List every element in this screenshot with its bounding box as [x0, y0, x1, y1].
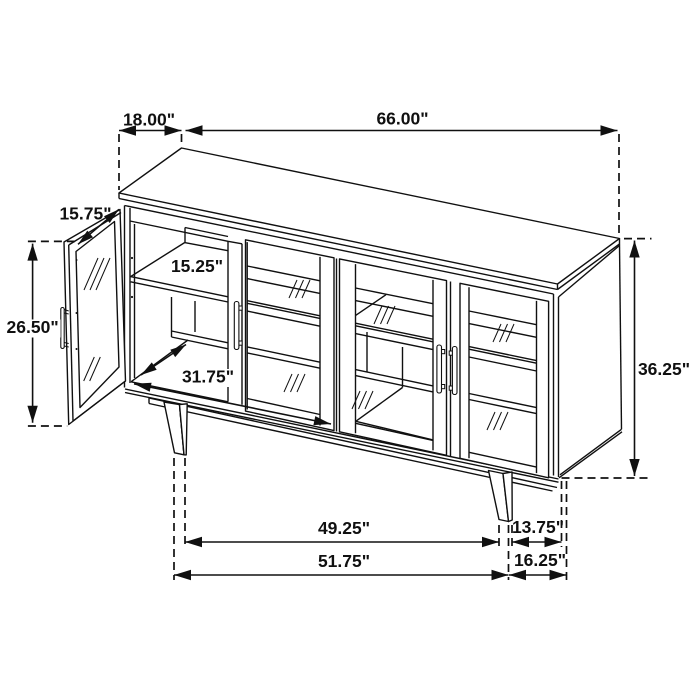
svg-text:15.25": 15.25": [171, 256, 223, 276]
svg-text:31.75": 31.75": [182, 367, 234, 387]
svg-text:16.25": 16.25": [514, 550, 566, 570]
svg-text:26.50": 26.50": [7, 317, 59, 337]
svg-text:15.75": 15.75": [59, 204, 111, 224]
svg-text:51.75": 51.75": [318, 551, 370, 571]
svg-text:13.75": 13.75": [512, 517, 564, 537]
svg-text:49.25": 49.25": [318, 518, 370, 538]
svg-text:66.00": 66.00": [376, 109, 428, 129]
svg-text:18.00": 18.00": [123, 110, 175, 130]
svg-text:36.25": 36.25": [638, 359, 690, 379]
